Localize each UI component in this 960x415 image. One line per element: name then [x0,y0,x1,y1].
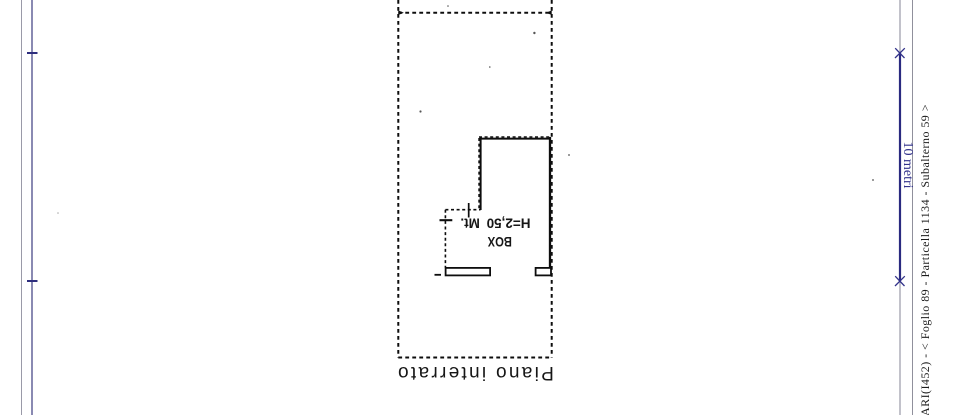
svg-text:ARI(I452) - < Foglio 89 - Part: ARI(I452) - < Foglio 89 - Particella 113… [918,104,932,415]
svg-text:Piano interrato: Piano interrato [396,362,554,383]
svg-text:H=2,50 Mt.: H=2,50 Mt. [460,216,530,231]
svg-text:10 metri: 10 metri [900,141,915,188]
svg-text:BOX: BOX [487,234,512,249]
